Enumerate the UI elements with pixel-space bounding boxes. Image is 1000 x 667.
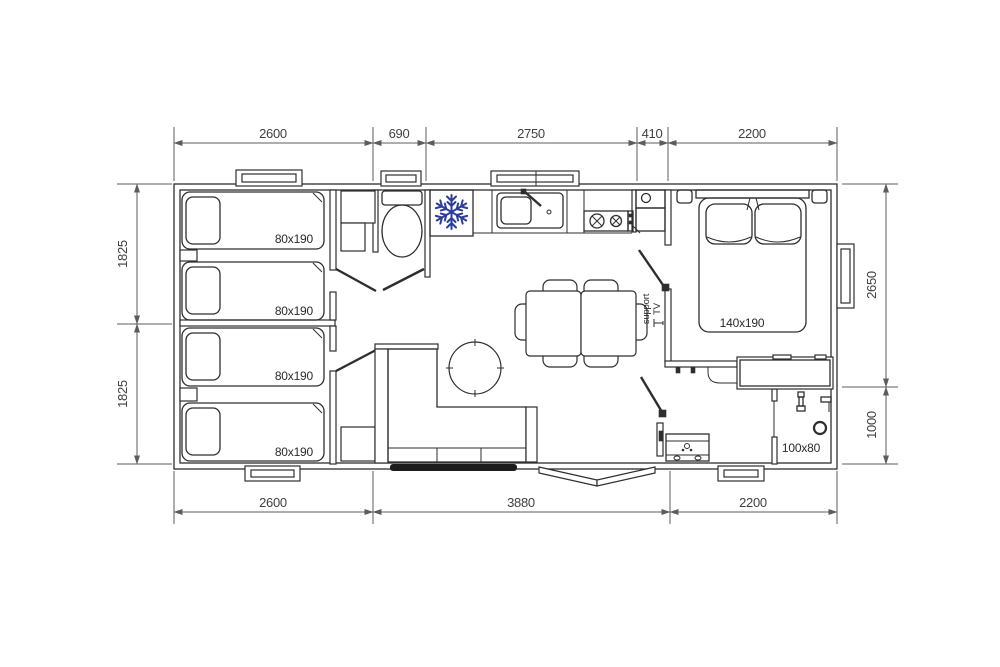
interior-walls <box>180 190 777 464</box>
window-bedroom1-top <box>236 170 302 186</box>
tv-support-label-2: TV <box>652 302 663 315</box>
window-kitchen-top <box>491 171 579 186</box>
dim-bottom-3: 2200 <box>739 495 767 510</box>
door-toilet <box>383 269 424 290</box>
toilet-room <box>382 191 422 257</box>
water-heater <box>633 190 665 233</box>
kitchen <box>430 189 665 236</box>
bed-1-size-label: 80x190 <box>275 232 314 246</box>
window-bathroom-bottom <box>718 466 764 481</box>
fridge <box>430 190 473 236</box>
dining-table-right <box>581 291 636 356</box>
nightstand-right <box>812 190 827 203</box>
wardrobe-bedroom2 <box>341 427 375 461</box>
dim-top-5: 2200 <box>738 126 766 141</box>
shower-mixer-icon <box>821 397 831 412</box>
nightstand-left <box>677 190 692 203</box>
dimension-right: 2650 1000 <box>842 184 898 464</box>
sofa-armrest <box>526 407 537 462</box>
dim-left-2: 1825 <box>115 380 130 408</box>
bedroom1: 80x190 80x190 <box>180 191 375 320</box>
master-wardrobe <box>737 355 833 389</box>
dining-table-left <box>526 291 581 356</box>
bed-3-size-label: 80x190 <box>275 369 314 383</box>
wardrobe-bedroom1 <box>341 191 375 223</box>
toilet-icon <box>382 191 422 257</box>
dim-top-4: 410 <box>642 126 663 141</box>
dim-left-1: 1825 <box>115 240 130 268</box>
dim-top-2: 690 <box>389 126 410 141</box>
shower-size-label: 100x80 <box>782 441 821 455</box>
window-toilet-top <box>381 171 421 186</box>
bed-4-size-label: 80x190 <box>275 445 314 459</box>
dimension-left: 1825 1825 <box>115 184 172 464</box>
dim-bottom-2: 3880 <box>507 495 535 510</box>
shower-room: 100x80 <box>782 392 831 455</box>
window-master-right <box>837 244 854 308</box>
stove <box>584 211 633 231</box>
snowflake-icon <box>435 195 469 229</box>
dim-right-2: 1000 <box>864 411 879 439</box>
floor-plan-drawing: 2600 690 2750 410 2200 2600 3880 2200 18… <box>0 0 1000 667</box>
picture-window-living <box>390 464 517 471</box>
dim-top-3: 2750 <box>517 126 545 141</box>
vanity-sink <box>666 434 709 461</box>
dim-top-1: 2600 <box>259 126 287 141</box>
tv-support-label-1: support <box>641 293 652 324</box>
bathroom: 100x80 <box>666 392 831 461</box>
nightstand-bedroom1 <box>180 250 197 261</box>
shower-drain <box>814 422 826 434</box>
nightstand-bedroom2 <box>180 388 197 401</box>
bed-2-size-label: 80x190 <box>275 304 314 318</box>
door-bedroom2 <box>336 350 376 371</box>
tv-support: support TV <box>641 293 663 327</box>
window-bedroom2-bottom <box>245 466 300 481</box>
bed-2: 80x190 <box>182 262 324 320</box>
floor-plan-page: 2600 690 2750 410 2200 2600 3880 2200 18… <box>0 0 1000 667</box>
headboard <box>696 190 809 198</box>
master-bed: 140x190 <box>699 198 806 332</box>
bed-4: 80x190 <box>182 403 324 461</box>
dim-bottom-1: 2600 <box>259 495 287 510</box>
dim-right-1: 2650 <box>864 271 879 299</box>
bed-3: 80x190 <box>182 328 324 386</box>
shower-head-icon <box>797 392 805 411</box>
dining-area <box>515 280 647 367</box>
master-bed-size-label: 140x190 <box>720 316 765 330</box>
master-bedroom: 140x190 <box>677 190 833 389</box>
shelf-bedroom1 <box>341 223 365 251</box>
round-table <box>446 339 504 397</box>
kitchen-sink <box>497 189 563 228</box>
bed-1: 80x190 <box>182 192 324 249</box>
door-master-bedroom <box>639 250 663 285</box>
bedroom2: 80x190 80x190 <box>180 328 375 461</box>
door-bedroom1 <box>336 269 376 291</box>
tv-bracket-icon <box>654 319 663 327</box>
entrance-double-door <box>539 467 655 486</box>
door-bathroom <box>641 377 666 417</box>
